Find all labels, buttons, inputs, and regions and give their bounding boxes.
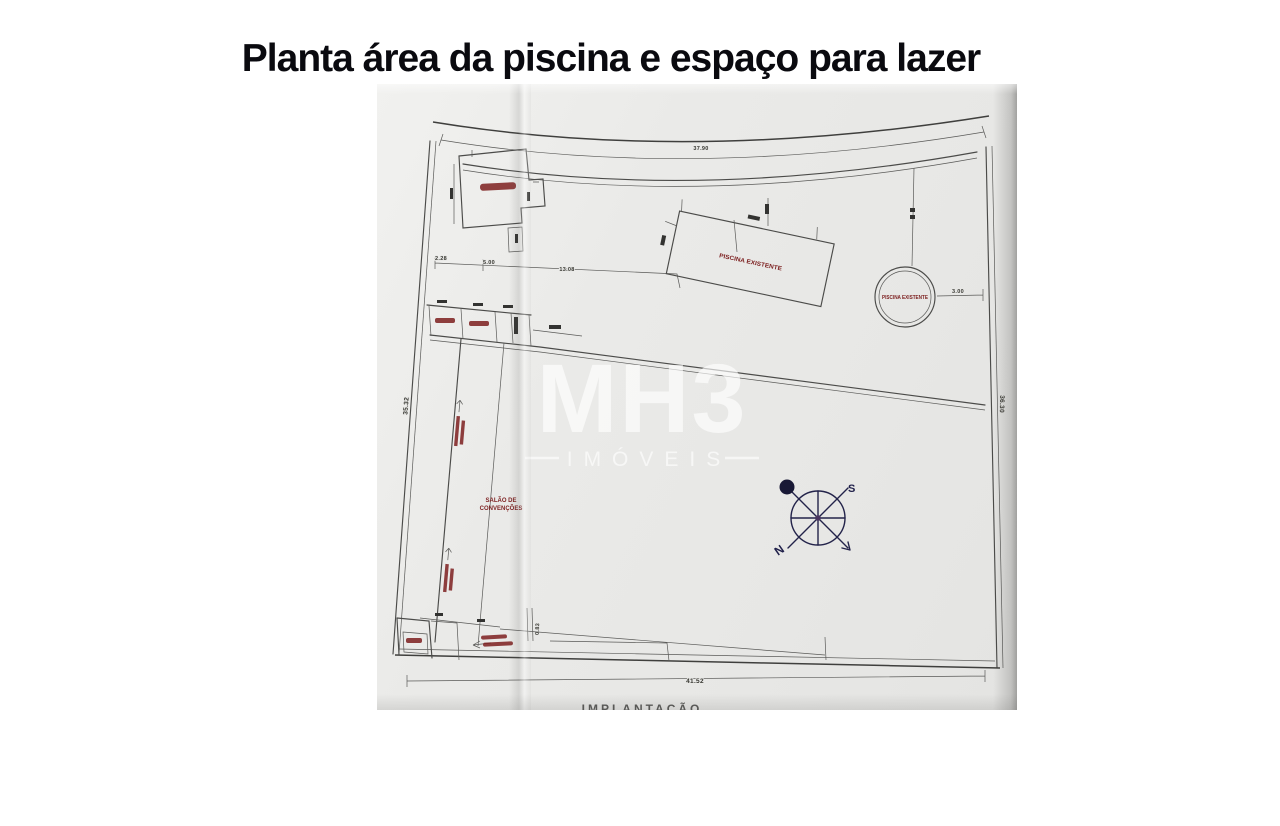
page-title: Planta área da piscina e espaço para laz… <box>242 37 980 81</box>
dim-right-label: 36.30 <box>998 395 1006 413</box>
illegible-dim-mark <box>473 303 483 306</box>
dim-d3-label: 13.08 <box>559 267 574 273</box>
illegible-dim-mark <box>549 325 561 329</box>
rect-pool: PISCINA EXISTENTE <box>655 196 837 307</box>
illegible-dim-mark <box>477 619 485 622</box>
illegible-red-label <box>481 634 507 639</box>
illegible-red-label <box>480 182 516 191</box>
illegible-dim-mark <box>503 305 513 308</box>
watermark: MH3 IMÓVEIS <box>525 344 759 471</box>
dim-round-offset-label: 3.00 <box>952 289 964 295</box>
corridor <box>435 339 504 646</box>
plan-caption: IMPLANTAÇÃO <box>582 701 703 710</box>
round-pool-label: PISCINA EXISTENTE <box>882 295 929 301</box>
ramp-red-label <box>442 548 456 593</box>
dim-d1-label: 2.28 <box>435 256 447 262</box>
dim-ramp-label: 0.83 <box>535 623 541 635</box>
rooms-row <box>427 300 582 346</box>
illegible-red-label <box>435 318 455 323</box>
dim-left-label: 35.32 <box>402 397 410 415</box>
dim-bottom-label: 41.52 <box>686 678 704 685</box>
illegible-dim-mark <box>910 215 915 219</box>
dim-d2-label: 5.00 <box>483 260 495 266</box>
compass-north-label: N <box>772 542 787 558</box>
rect-pool-label: PISCINA EXISTENTE <box>718 253 782 272</box>
hall-label-line1: SALÃO DE <box>485 497 516 504</box>
watermark-subtitle: IMÓVEIS <box>567 448 732 471</box>
illegible-dim-mark <box>748 214 761 220</box>
illegible-red-label <box>483 641 513 647</box>
floor-plan-scan: 37.90 35.32 36.30 41.52 2.28 5.00 13.08 <box>377 84 1017 710</box>
compass-dot-icon <box>780 480 795 495</box>
illegible-dim-mark <box>910 208 915 212</box>
dimension-row: 2.28 5.00 13.08 <box>435 256 680 288</box>
watermark-brand: MH3 <box>537 344 748 453</box>
compass-rose: S N <box>772 480 856 559</box>
compass-south-label: S <box>848 483 855 495</box>
illegible-dim-mark <box>435 613 443 616</box>
illegible-dim-mark <box>660 235 666 246</box>
illegible-dim-mark <box>437 300 447 303</box>
illegible-red-label <box>469 321 489 326</box>
page: Planta área da piscina e espaço para laz… <box>0 0 1280 826</box>
dim-top-label: 37.90 <box>693 146 708 152</box>
illegible-dim-mark <box>515 234 518 243</box>
illegible-dim-mark <box>527 192 530 201</box>
illegible-red-label <box>406 638 422 643</box>
hall-label-line2: CONVENÇÕES <box>480 505 523 512</box>
illegible-dim-mark <box>765 204 769 214</box>
floor-plan-svg: 37.90 35.32 36.30 41.52 2.28 5.00 13.08 <box>377 84 1017 710</box>
door-mark <box>514 317 518 334</box>
illegible-dim-mark <box>450 188 453 199</box>
round-pool: PISCINA EXISTENTE 3.00 <box>875 168 983 327</box>
